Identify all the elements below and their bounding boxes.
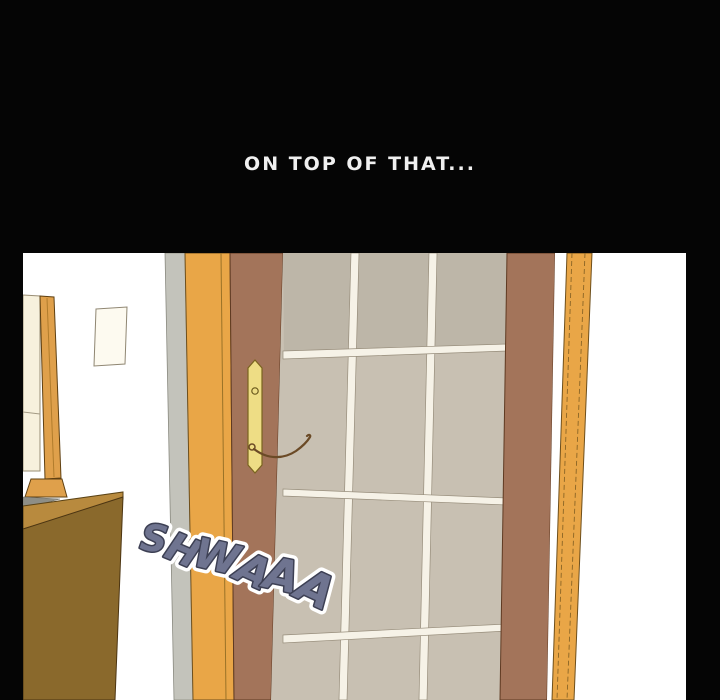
door-stile-right	[500, 253, 555, 700]
sfx-shwaaa-top: SHWAAA SHWAAA	[115, 503, 350, 618]
mirror-foot	[25, 479, 67, 497]
door-frame-left	[185, 253, 234, 700]
narration-caption: ON TOP OF THAT...	[0, 153, 720, 175]
mirror-glass	[23, 295, 40, 471]
dresser-front	[23, 497, 123, 700]
sfx-fill-layer: SHWAAA	[130, 506, 343, 622]
switch-plate	[94, 307, 127, 366]
comic-panel: SHWAAA SHWAAA SHWAAA SHWAAA	[23, 253, 686, 700]
comic-page: ON TOP OF THAT...	[0, 0, 720, 700]
door-handle-plate	[248, 360, 262, 473]
door-glass-top-shade	[283, 253, 507, 355]
room-scene	[23, 253, 686, 700]
